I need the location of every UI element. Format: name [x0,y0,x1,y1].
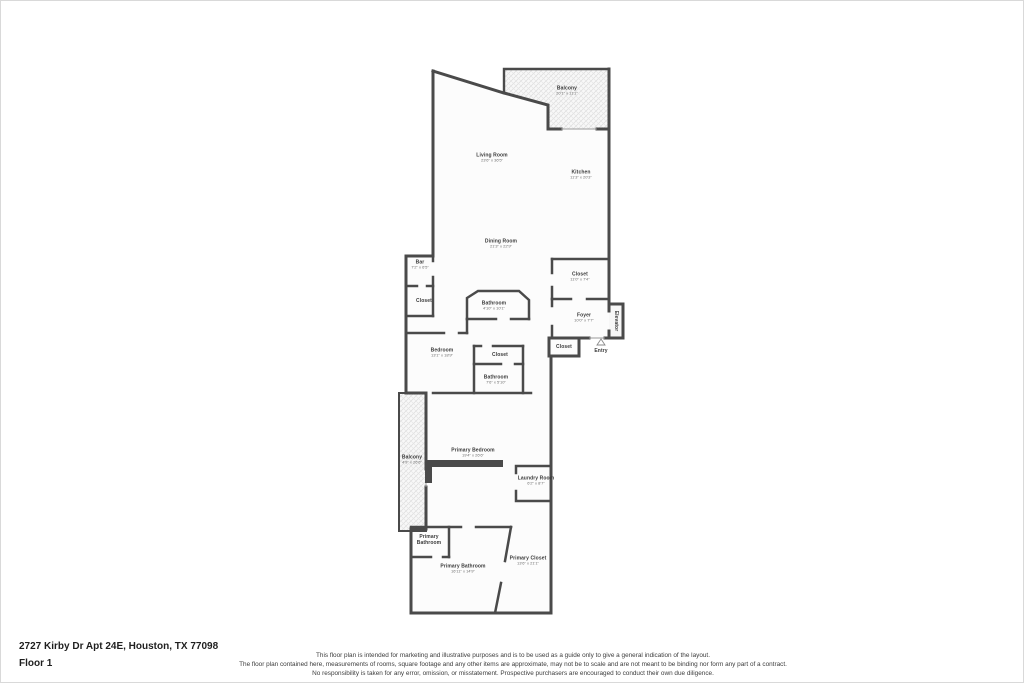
disclaimer-line: No responsibility is taken for any error… [1,669,1024,678]
floor-plan-page: Balcony20'1" x 11'1"Living Room23'6" x 3… [0,0,1024,683]
disclaimer: This floor plan is intended for marketin… [1,651,1024,678]
floor-plan-drawing [1,1,1024,683]
unit-floor-area [406,71,623,613]
disclaimer-line: The floor plan contained here, measureme… [1,660,1024,669]
entry-arrow-icon [597,339,605,345]
balcony-lower-area [399,393,426,531]
disclaimer-line: This floor plan is intended for marketin… [1,651,1024,660]
